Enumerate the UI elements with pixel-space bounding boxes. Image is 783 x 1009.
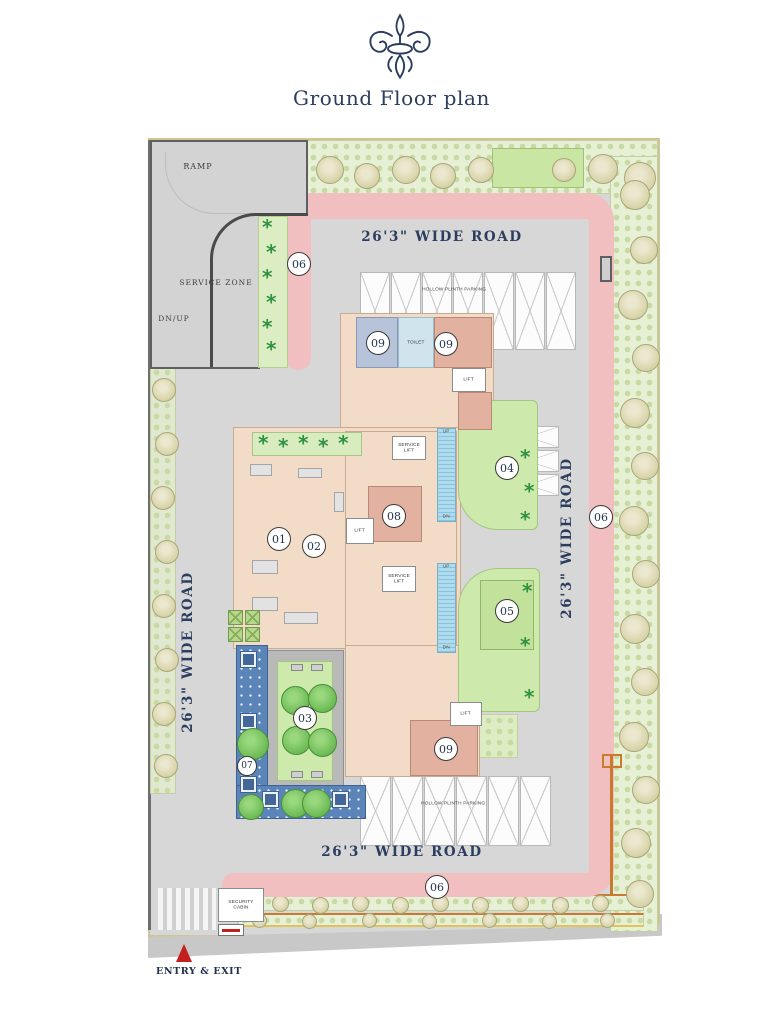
path-marker-06-b: 06: [589, 505, 613, 529]
tree-icon: [151, 486, 175, 510]
unit-marker-08: 08: [382, 504, 406, 528]
service-lift-room-1: SERVICE LIFT: [392, 436, 426, 460]
palm-tree-icon: *: [520, 450, 530, 464]
planter-box: [245, 627, 260, 642]
road-label-left: 26'3" WIDE ROAD: [180, 562, 196, 742]
planter-box: [263, 792, 278, 807]
tree-icon: [632, 776, 660, 804]
hedge-strip-bottom-2: [238, 913, 644, 927]
tree-icon: [619, 506, 649, 536]
tree-icon: [631, 452, 659, 480]
tree-icon: [621, 828, 651, 858]
stair-water-strip-2: [437, 563, 456, 653]
furniture: [298, 468, 322, 478]
lift-room-3: LIFT: [450, 702, 482, 726]
parking-label-bottom: HOLLOW PLINTH PARKING: [398, 796, 508, 812]
palm-tree-icon: *: [520, 512, 530, 526]
tree-icon: [154, 754, 178, 778]
palm-tree-icon: *: [266, 245, 276, 259]
bench: [311, 664, 323, 671]
utility-box: [600, 256, 612, 282]
unit-09-room-extension: [458, 392, 492, 430]
tree-icon: [422, 914, 437, 929]
gate-barrier-arm: [222, 929, 240, 932]
palm-tree-icon: *: [258, 436, 268, 450]
bench: [291, 664, 303, 671]
dn-up-label: DN/UP: [150, 314, 198, 323]
boundary-gate-box: [602, 754, 622, 768]
furniture: [334, 492, 344, 512]
tree-icon: [620, 614, 650, 644]
tree-icon: [362, 913, 377, 928]
tree-icon: [302, 789, 331, 818]
path-marker-06-c: 06: [425, 875, 449, 899]
tree-icon: [600, 913, 615, 928]
tree-icon: [626, 880, 654, 908]
tree-icon: [512, 895, 529, 912]
pedestrian-crossing: [158, 888, 216, 930]
tree-icon: [152, 378, 176, 402]
tree-icon: [632, 560, 660, 588]
planter-box: [241, 714, 256, 729]
tree-icon: [312, 897, 329, 914]
unit-marker-02: 02: [302, 534, 326, 558]
dn-label: DN: [434, 513, 458, 522]
palm-tree-icon: *: [298, 436, 308, 450]
tree-icon: [272, 895, 289, 912]
furniture: [284, 612, 318, 624]
gate-barrier: [218, 924, 244, 936]
tree-icon: [308, 728, 337, 757]
palm-tree-icon: *: [262, 220, 272, 234]
parking-label-top: HOLLOW PLINTH PARKING: [404, 282, 504, 298]
lift-room-1: LIFT: [452, 368, 486, 392]
tree-icon: [354, 163, 380, 189]
planter-box: [228, 627, 243, 642]
palm-tree-icon: *: [520, 638, 530, 652]
unit-marker-09-b: 09: [434, 332, 458, 356]
palm-tree-icon: *: [318, 439, 328, 453]
palm-tree-icon: *: [524, 484, 534, 498]
tree-icon: [618, 290, 648, 320]
furniture: [250, 464, 272, 476]
lift-room-2: LIFT: [346, 518, 374, 544]
stair-water-strip-1: [437, 428, 456, 522]
planter-box: [333, 792, 348, 807]
tree-icon: [282, 726, 311, 755]
tree-icon: [152, 702, 176, 726]
tree-icon: [152, 594, 176, 618]
path-marker-06-a: 06: [287, 252, 311, 276]
tree-icon: [472, 897, 489, 914]
tree-icon: [316, 156, 344, 184]
hedge-strip-right: [610, 156, 658, 932]
planter-box: [241, 652, 256, 667]
planter-box: [228, 610, 243, 625]
palm-tree-icon: *: [266, 342, 276, 356]
tree-icon: [632, 344, 660, 372]
service-lift-room-2: SERVICE LIFT: [382, 566, 416, 592]
service-zone-label: SERVICE ZONE: [176, 278, 256, 287]
tree-icon: [542, 914, 557, 929]
tree-icon: [238, 794, 264, 820]
tree-icon: [302, 914, 317, 929]
furniture: [252, 597, 278, 611]
palm-tree-icon: *: [262, 320, 272, 334]
security-cabin: SECURITY CABIN: [218, 888, 264, 922]
toilet-label: TOILET: [407, 340, 424, 345]
tree-icon: [620, 398, 650, 428]
tree-icon: [482, 913, 497, 928]
boundary-line-orange: [610, 756, 613, 896]
up-label: UP: [434, 563, 458, 572]
tree-icon: [352, 895, 369, 912]
tree-icon: [620, 180, 650, 210]
tree-icon: [468, 157, 494, 183]
planter-box: [245, 610, 260, 625]
hedge-strip-left: [150, 366, 176, 794]
tree-icon: [155, 648, 179, 672]
palm-tree-icon: *: [524, 690, 534, 704]
tree-icon: [392, 156, 420, 184]
tree-icon: [619, 722, 649, 752]
fleur-de-lis-icon: [356, 12, 444, 84]
palm-tree-icon: *: [522, 584, 532, 598]
dn-label: DN: [434, 644, 458, 653]
unit-marker-07: 07: [237, 756, 257, 776]
unit-marker-03: 03: [293, 706, 317, 730]
up-label: UP: [434, 428, 458, 437]
tree-icon: [155, 540, 179, 564]
palm-tree-icon: *: [266, 295, 276, 309]
palm-tree-icon: *: [278, 439, 288, 453]
page-title: Ground Floor plan: [0, 86, 783, 110]
entry-exit-label: ENTRY & EXIT: [156, 966, 266, 977]
unit-marker-09-a: 09: [366, 331, 390, 355]
tree-icon: [237, 728, 269, 760]
palm-tree-icon: *: [262, 270, 272, 284]
palm-tree-icon: *: [338, 436, 348, 450]
tree-icon: [631, 668, 659, 696]
bench: [291, 771, 303, 778]
tree-icon: [552, 897, 569, 914]
entry-arrow-icon: [176, 944, 192, 962]
bench: [311, 771, 323, 778]
tree-icon: [592, 895, 609, 912]
unit-marker-09-c: 09: [434, 737, 458, 761]
tree-icon: [155, 432, 179, 456]
toilet-room: TOILET: [398, 317, 434, 368]
furniture: [252, 560, 278, 574]
unit-marker-01: 01: [267, 527, 291, 551]
tree-icon: [430, 163, 456, 189]
tree-icon: [552, 158, 576, 182]
ramp-label: RAMP: [168, 162, 228, 171]
tree-icon: [588, 154, 618, 184]
tree-icon: [392, 897, 409, 914]
tree-icon: [630, 236, 658, 264]
unit-marker-05: 05: [495, 599, 519, 623]
planter-box: [241, 777, 256, 792]
unit-marker-04: 04: [495, 456, 519, 480]
ground-floor-plan: Ground Floor plan RAMP SERVICE ZONE DN/U…: [0, 0, 783, 1009]
